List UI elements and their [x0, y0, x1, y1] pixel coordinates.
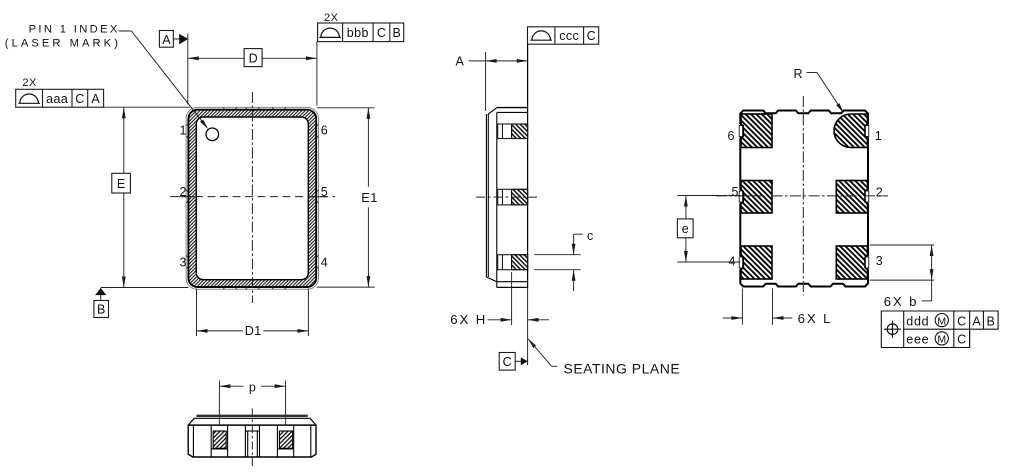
svg-text:D1: D1: [245, 324, 262, 338]
svg-text:6X H: 6X H: [450, 312, 487, 327]
svg-text:e: e: [682, 222, 689, 236]
svg-text:6: 6: [321, 123, 328, 137]
svg-text:A: A: [456, 55, 465, 69]
svg-text:6X L: 6X L: [798, 311, 833, 326]
svg-text:C: C: [957, 333, 966, 347]
svg-text:M: M: [937, 334, 946, 346]
svg-text:E1: E1: [361, 190, 377, 205]
svg-text:C: C: [75, 92, 84, 106]
svg-text:6: 6: [728, 129, 735, 143]
svg-text:2X: 2X: [324, 12, 339, 24]
svg-text:M: M: [937, 315, 946, 327]
svg-text:D: D: [249, 52, 258, 66]
svg-text:A: A: [162, 33, 171, 47]
svg-text:3: 3: [876, 254, 883, 268]
svg-text:C: C: [377, 26, 386, 40]
svg-text:3: 3: [180, 256, 187, 270]
svg-text:c: c: [587, 229, 593, 243]
svg-text:A: A: [91, 92, 100, 106]
svg-text:2: 2: [876, 186, 883, 200]
svg-text:R: R: [794, 67, 803, 81]
svg-text:eee: eee: [906, 333, 929, 347]
svg-text:aaa: aaa: [46, 92, 68, 106]
svg-text:2X: 2X: [22, 77, 37, 89]
svg-text:SEATING PLANE: SEATING PLANE: [564, 361, 681, 377]
svg-text:6X b: 6X b: [884, 294, 919, 309]
svg-text:2: 2: [180, 185, 187, 199]
svg-text:4: 4: [729, 255, 736, 269]
svg-text:B: B: [987, 314, 995, 328]
svg-text:PIN 1 INDEX: PIN 1 INDEX: [29, 24, 120, 36]
svg-text:ddd: ddd: [906, 314, 929, 328]
svg-text:5: 5: [321, 185, 328, 199]
svg-text:A: A: [972, 314, 981, 328]
svg-text:B: B: [393, 26, 401, 40]
svg-text:C: C: [503, 355, 512, 369]
svg-text:4: 4: [321, 256, 328, 270]
svg-text:(LASER MARK): (LASER MARK): [5, 38, 121, 50]
svg-text:B: B: [97, 303, 105, 317]
svg-text:C: C: [957, 314, 966, 328]
svg-text:1: 1: [180, 123, 187, 137]
svg-text:E: E: [117, 177, 125, 191]
svg-text:5: 5: [732, 185, 739, 199]
svg-text:1: 1: [875, 129, 882, 143]
svg-text:C: C: [587, 29, 596, 43]
svg-text:ccc: ccc: [559, 29, 579, 43]
svg-text:bbb: bbb: [347, 26, 369, 40]
svg-text:p: p: [249, 381, 256, 395]
